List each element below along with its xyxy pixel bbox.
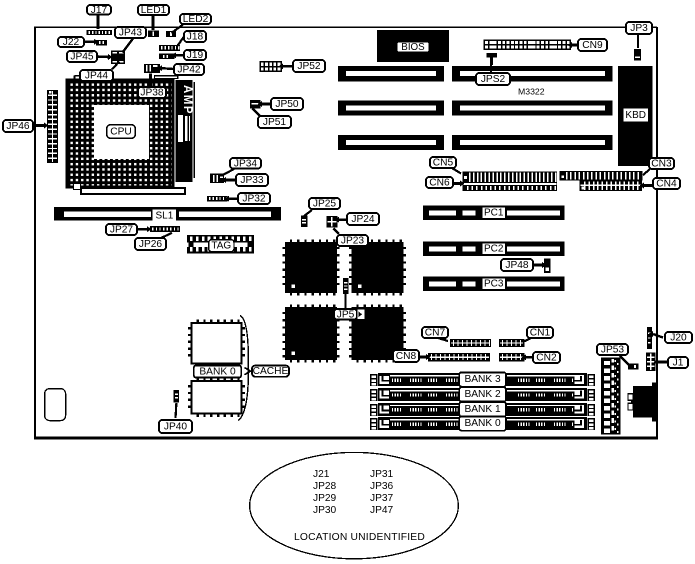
svg-text:JP43: JP43: [119, 28, 143, 39]
svg-text:CN5: CN5: [433, 158, 454, 169]
svg-text:JP40: JP40: [164, 422, 188, 433]
svg-text:LED1: LED1: [141, 5, 167, 16]
svg-text:BANK 0: BANK 0: [199, 367, 236, 378]
svg-text:JP33: JP33: [240, 175, 264, 186]
svg-text:J17: J17: [91, 5, 108, 16]
svg-text:JPS2: JPS2: [481, 74, 506, 85]
svg-text:PC2: PC2: [484, 243, 504, 254]
svg-text:JP31: JP31: [370, 469, 394, 480]
svg-text:JP48: JP48: [505, 260, 529, 271]
svg-text:JP26: JP26: [139, 239, 163, 250]
svg-text:JP36: JP36: [370, 481, 394, 492]
svg-text:JP47: JP47: [370, 505, 394, 516]
svg-text:CACHE: CACHE: [253, 366, 289, 377]
svg-text:JP38: JP38: [140, 88, 164, 99]
svg-text:CN1: CN1: [530, 328, 551, 339]
svg-text:M3322: M3322: [518, 87, 545, 97]
svg-text:CN2: CN2: [536, 353, 557, 364]
svg-text:CN8: CN8: [396, 351, 417, 362]
svg-text:CN3: CN3: [651, 159, 672, 170]
svg-text:J20: J20: [670, 333, 687, 344]
svg-text:J19: J19: [187, 50, 204, 61]
svg-text:JP29: JP29: [313, 493, 337, 504]
svg-text:JP42: JP42: [177, 65, 201, 76]
svg-text:CN6: CN6: [429, 178, 450, 189]
svg-text:PC3: PC3: [484, 279, 504, 290]
svg-text:JP45: JP45: [70, 52, 94, 63]
svg-text:JP24: JP24: [351, 214, 375, 225]
svg-text:JP52: JP52: [297, 61, 321, 72]
svg-text:J1: J1: [673, 358, 684, 369]
svg-text:TAG: TAG: [211, 240, 231, 251]
svg-text:CPU: CPU: [110, 127, 132, 138]
svg-text:JP32: JP32: [242, 194, 266, 205]
svg-text:J21: J21: [313, 469, 330, 480]
svg-text:BANK 1: BANK 1: [464, 404, 501, 415]
svg-text:JP53: JP53: [601, 345, 625, 356]
svg-text:PC1: PC1: [484, 208, 504, 219]
svg-text:JP50: JP50: [275, 99, 299, 110]
svg-text:LOCATION UNIDENTIFIED: LOCATION UNIDENTIFIED: [294, 532, 425, 543]
svg-text:CN9: CN9: [582, 40, 603, 51]
svg-text:JP3: JP3: [630, 23, 648, 34]
svg-text:BANK 3: BANK 3: [464, 374, 501, 385]
svg-text:J18: J18: [187, 32, 204, 43]
svg-text:JP30: JP30: [313, 505, 337, 516]
svg-text:JP51: JP51: [263, 117, 287, 128]
svg-text:JP46: JP46: [6, 121, 30, 132]
svg-text:JP44: JP44: [85, 71, 109, 82]
svg-text:JP25: JP25: [313, 199, 337, 210]
svg-text:JP28: JP28: [313, 481, 337, 492]
svg-text:BANK 2: BANK 2: [464, 389, 501, 400]
svg-text:CN4: CN4: [656, 179, 677, 190]
svg-text:BIOS: BIOS: [401, 42, 425, 53]
svg-text:LED2: LED2: [183, 14, 209, 25]
svg-text:JP27: JP27: [110, 225, 134, 236]
svg-text:CN7: CN7: [425, 328, 446, 339]
svg-text:BANK 0: BANK 0: [464, 418, 501, 429]
svg-text:JP23: JP23: [341, 236, 365, 247]
svg-text:JP34: JP34: [234, 158, 258, 169]
svg-text:AMP: AMP: [181, 85, 193, 115]
svg-text:JP5: JP5: [337, 309, 355, 320]
svg-text:SL1: SL1: [156, 210, 174, 221]
svg-text:J22: J22: [63, 37, 80, 48]
svg-text:JP37: JP37: [370, 493, 394, 504]
svg-text:KBD: KBD: [625, 110, 646, 121]
